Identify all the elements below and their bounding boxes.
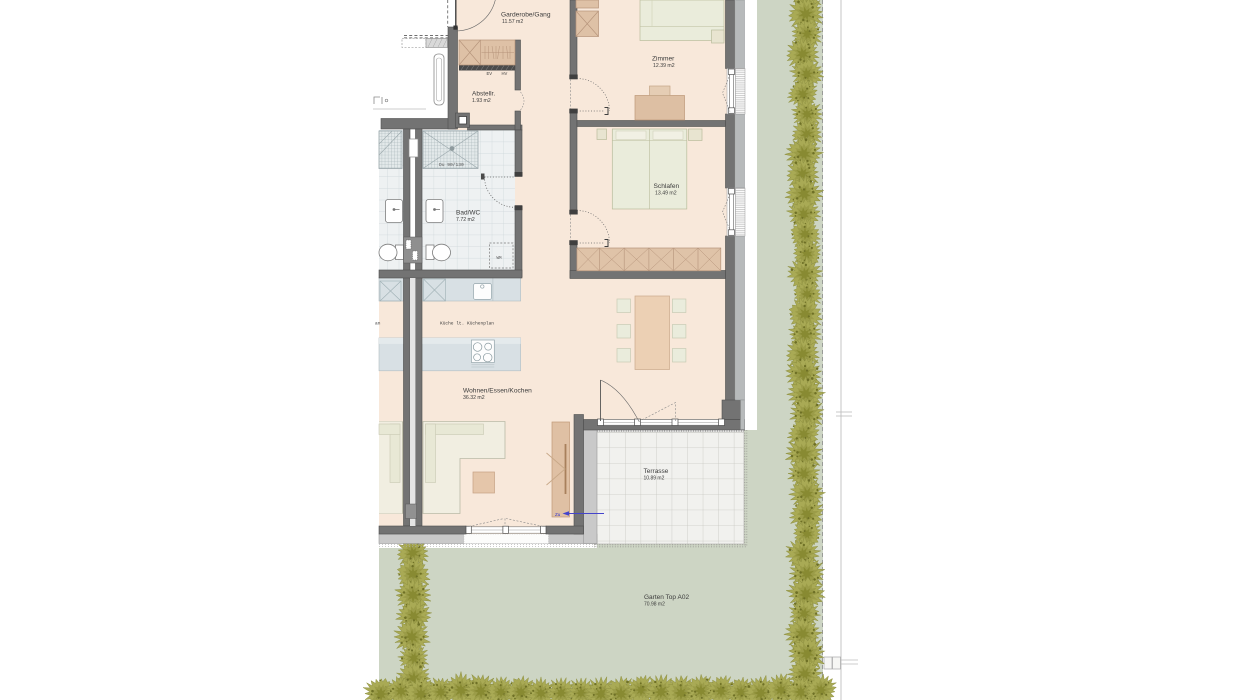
svg-text:Küche lt. Küchenplan: Küche lt. Küchenplan [440,321,494,327]
svg-text:Du 90/130: Du 90/130 [439,162,464,168]
svg-text:Zu: Zu [555,512,561,517]
svg-text:an: an [375,322,381,327]
svg-text:Garten Top A02: Garten Top A02 [644,594,689,601]
svg-text:7.72 m2: 7.72 m2 [456,217,475,223]
svg-text:HV: HV [502,71,508,76]
svg-text:Abstellr.: Abstellr. [472,91,495,98]
svg-text:10.89 m2: 10.89 m2 [644,476,665,482]
svg-text:Bad/WC: Bad/WC [456,210,481,217]
svg-text:36.32 m2: 36.32 m2 [463,395,485,401]
svg-text:11.57 m2: 11.57 m2 [502,19,523,25]
svg-text:Zimmer: Zimmer [652,56,675,63]
svg-text:12.39 m2: 12.39 m2 [653,63,675,69]
svg-text:70.98 m2: 70.98 m2 [644,602,665,608]
svg-text:Terrasse: Terrasse [644,468,669,475]
svg-text:Garderobe/Gang: Garderobe/Gang [501,12,551,19]
svg-text:Schlafen: Schlafen [654,183,680,190]
svg-text:Wohnen/Essen/Kochen: Wohnen/Essen/Kochen [463,388,532,395]
svg-text:1.93 m2: 1.93 m2 [472,98,491,104]
svg-text:13.49 m2: 13.49 m2 [655,191,677,197]
svg-text:WM: WM [497,257,503,261]
svg-text:EV: EV [487,71,493,76]
